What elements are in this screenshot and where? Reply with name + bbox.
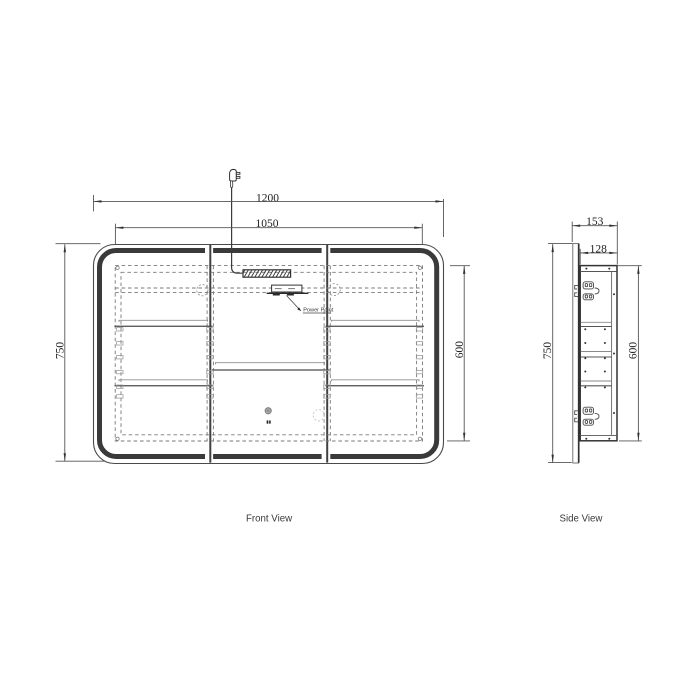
svg-text:153: 153: [586, 216, 604, 228]
svg-text:Front View: Front View: [246, 514, 293, 525]
svg-text:1050: 1050: [256, 218, 279, 230]
svg-text:750: 750: [542, 342, 554, 360]
svg-text:Side View: Side View: [560, 514, 604, 525]
svg-text:750: 750: [54, 342, 66, 360]
svg-text:1200: 1200: [256, 192, 279, 204]
svg-text:600: 600: [454, 341, 466, 359]
svg-text:128: 128: [590, 243, 608, 255]
svg-text:600: 600: [628, 342, 640, 360]
